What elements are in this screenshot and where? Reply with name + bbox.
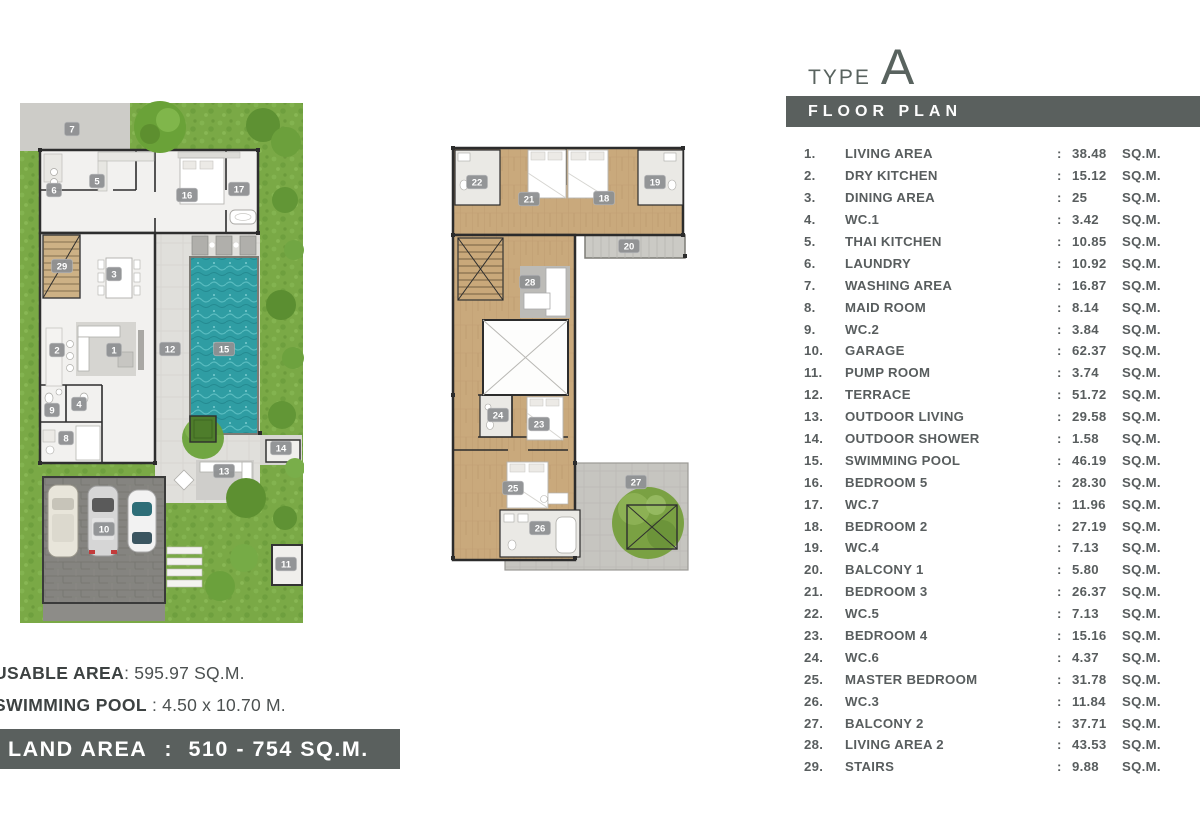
room-colon: : <box>1057 365 1072 380</box>
room-area: 28.30 <box>1072 475 1122 490</box>
room-number-badge-label: 17 <box>234 184 245 195</box>
room-name: WC.7 <box>845 497 1057 512</box>
room-number-badge-label: 28 <box>525 277 536 288</box>
room-number-badge-label: 26 <box>535 523 546 534</box>
room-row: 28.LIVING AREA 2:43.53SQ.M. <box>786 734 1200 756</box>
room-number: 21. <box>804 584 845 599</box>
room-row: 20.BALCONY 1:5.80SQ.M. <box>786 559 1200 581</box>
stairs-2f <box>458 238 503 300</box>
room-area: 62.37 <box>1072 343 1122 358</box>
room-number: 19. <box>804 540 845 555</box>
room-area: 15.16 <box>1072 628 1122 643</box>
room-number: 23. <box>804 628 845 643</box>
room-number: 8. <box>804 300 845 315</box>
room-number-badge-label: 15 <box>219 344 230 355</box>
room-number: 10. <box>804 343 845 358</box>
room-colon: : <box>1057 475 1072 490</box>
room-number-badge-label: 24 <box>493 410 504 421</box>
room-number: 16. <box>804 475 845 490</box>
room-number-badge-label: 4 <box>76 399 82 410</box>
room-name: WC.3 <box>845 694 1057 709</box>
room-colon: : <box>1057 584 1072 599</box>
swimming-pool-value: : 4.50 x 10.70 M. <box>147 695 286 715</box>
room-area: 1.58 <box>1072 431 1122 446</box>
garage-cars <box>48 485 156 557</box>
room-colon: : <box>1057 409 1072 424</box>
room-number: 5. <box>804 234 845 249</box>
room-row: 8.MAID ROOM:8.14SQ.M. <box>786 296 1200 318</box>
room-number-badge-label: 14 <box>276 443 287 454</box>
room-area: 26.37 <box>1072 584 1122 599</box>
room-number-badge-label: 6 <box>51 185 56 196</box>
room-colon: : <box>1057 387 1072 402</box>
ground-floor-plan: 765161729321121594813141011 <box>18 100 304 625</box>
room-number: 22. <box>804 606 845 621</box>
room-row: 29.STAIRS:9.88SQ.M. <box>786 756 1200 778</box>
usable-area-line: USABLE AREA: 595.97 SQ.M. <box>0 663 245 684</box>
room-unit: SQ.M. <box>1122 343 1200 358</box>
second-floor-plan: 2221181920282423252627 <box>448 143 710 575</box>
room-number: 1. <box>804 146 845 161</box>
room-colon: : <box>1057 322 1072 337</box>
room-name: MASTER BEDROOM <box>845 672 1057 687</box>
room-name: WC.1 <box>845 212 1057 227</box>
plan-type-title: TYPE A <box>786 38 915 96</box>
room-unit: SQ.M. <box>1122 409 1200 424</box>
room-number: 13. <box>804 409 845 424</box>
room-number: 15. <box>804 453 845 468</box>
room-area: 7.13 <box>1072 540 1122 555</box>
room-colon: : <box>1057 497 1072 512</box>
room-colon: : <box>1057 672 1072 687</box>
room-unit: SQ.M. <box>1122 431 1200 446</box>
room-unit: SQ.M. <box>1122 256 1200 271</box>
land-area-value: 510 - 754 SQ.M. <box>188 737 368 762</box>
room-area: 9.88 <box>1072 759 1122 774</box>
room-number: 29. <box>804 759 845 774</box>
room-number: 27. <box>804 716 845 731</box>
room-unit: SQ.M. <box>1122 716 1200 731</box>
room-name: LAUNDRY <box>845 256 1057 271</box>
room-name: BEDROOM 2 <box>845 519 1057 534</box>
room-colon: : <box>1057 278 1072 293</box>
room-area: 46.19 <box>1072 453 1122 468</box>
usable-area-label: USABLE AREA <box>0 663 124 683</box>
room-name: OUTDOOR LIVING <box>845 409 1057 424</box>
room-name: TERRACE <box>845 387 1057 402</box>
land-area-bar: LAND AREA : 510 - 754 SQ.M. <box>0 729 400 769</box>
room-colon: : <box>1057 431 1072 446</box>
room-name: BEDROOM 5 <box>845 475 1057 490</box>
room-row: 22.WC.5:7.13SQ.M. <box>786 603 1200 625</box>
room-name: WC.6 <box>845 650 1057 665</box>
room-number-badge-label: 27 <box>631 477 642 488</box>
room-colon: : <box>1057 606 1072 621</box>
room-number-badge-label: 25 <box>508 483 519 494</box>
room-row: 1.LIVING AREA:38.48SQ.M. <box>786 143 1200 165</box>
swimming-pool-line: SWIMMING POOL : 4.50 x 10.70 M. <box>0 695 286 716</box>
room-area: 3.74 <box>1072 365 1122 380</box>
room-row: 6.LAUNDRY:10.92SQ.M. <box>786 252 1200 274</box>
room-area: 27.19 <box>1072 519 1122 534</box>
room-unit: SQ.M. <box>1122 168 1200 183</box>
room-colon: : <box>1057 628 1072 643</box>
room-row: 16.BEDROOM 5:28.30SQ.M. <box>786 471 1200 493</box>
room-number: 17. <box>804 497 845 512</box>
room-number-badge-label: 13 <box>219 466 230 477</box>
room-row: 2.DRY KITCHEN:15.12SQ.M. <box>786 165 1200 187</box>
car-icon <box>128 490 156 552</box>
room-row: 18.BEDROOM 2:27.19SQ.M. <box>786 515 1200 537</box>
room-number-badge-label: 9 <box>49 405 54 416</box>
room-number-badge-label: 1 <box>111 345 117 356</box>
room-area: 5.80 <box>1072 562 1122 577</box>
void-opening <box>483 320 568 395</box>
room-number-badge-label: 11 <box>281 559 292 570</box>
driveway <box>43 603 165 621</box>
room-name: OUTDOOR SHOWER <box>845 431 1057 446</box>
room-number-badge-label: 12 <box>165 344 176 355</box>
room-unit: SQ.M. <box>1122 475 1200 490</box>
room-colon: : <box>1057 519 1072 534</box>
room-number: 24. <box>804 650 845 665</box>
room-row: 5.THAI KITCHEN:10.85SQ.M. <box>786 231 1200 253</box>
room-name: MAID ROOM <box>845 300 1057 315</box>
room-colon: : <box>1057 562 1072 577</box>
room-unit: SQ.M. <box>1122 562 1200 577</box>
room-name: BALCONY 2 <box>845 716 1057 731</box>
room-number-badge-label: 19 <box>650 177 661 188</box>
room-area: 7.13 <box>1072 606 1122 621</box>
room-row: 10.GARAGE:62.37SQ.M. <box>786 340 1200 362</box>
type-letter: A <box>881 38 915 96</box>
room-colon: : <box>1057 190 1072 205</box>
room-unit: SQ.M. <box>1122 650 1200 665</box>
room-area: 3.84 <box>1072 322 1122 337</box>
room-area: 15.12 <box>1072 168 1122 183</box>
type-label: TYPE <box>808 66 871 90</box>
room-colon: : <box>1057 234 1072 249</box>
room-name: BEDROOM 3 <box>845 584 1057 599</box>
room-row: 3.DINING AREA:25SQ.M. <box>786 187 1200 209</box>
room-number-badge-label: 5 <box>94 176 100 187</box>
room-name: STAIRS <box>845 759 1057 774</box>
room-unit: SQ.M. <box>1122 737 1200 752</box>
room-number: 2. <box>804 168 845 183</box>
room-number-badge-label: 21 <box>524 194 535 205</box>
room-row: 13.OUTDOOR LIVING:29.58SQ.M. <box>786 406 1200 428</box>
room-row: 19.WC.4:7.13SQ.M. <box>786 537 1200 559</box>
room-area: 11.96 <box>1072 497 1122 512</box>
room-number-badge-label: 3 <box>111 269 116 280</box>
land-area-colon: : <box>164 737 171 762</box>
room-number: 28. <box>804 737 845 752</box>
room-name: WASHING AREA <box>845 278 1057 293</box>
room-colon: : <box>1057 256 1072 271</box>
room-name: WC.5 <box>845 606 1057 621</box>
room-name: BEDROOM 4 <box>845 628 1057 643</box>
room-colon: : <box>1057 540 1072 555</box>
room-row: 12.TERRACE:51.72SQ.M. <box>786 384 1200 406</box>
room-row: 4.WC.1:3.42SQ.M. <box>786 209 1200 231</box>
room-number-badge-label: 7 <box>69 124 74 135</box>
room-number-badge-label: 18 <box>599 193 610 204</box>
room-area: 11.84 <box>1072 694 1122 709</box>
room-name: PUMP ROOM <box>845 365 1057 380</box>
room-unit: SQ.M. <box>1122 453 1200 468</box>
room-name: SWIMMING POOL <box>845 453 1057 468</box>
room-unit: SQ.M. <box>1122 190 1200 205</box>
room-row: 14.OUTDOOR SHOWER:1.58SQ.M. <box>786 428 1200 450</box>
room-number-badge-label: 23 <box>534 419 545 430</box>
room-area: 25 <box>1072 190 1122 205</box>
room-number: 26. <box>804 694 845 709</box>
room-area: 16.87 <box>1072 278 1122 293</box>
room-row: 11.PUMP ROOM:3.74SQ.M. <box>786 362 1200 384</box>
room-row: 17.WC.7:11.96SQ.M. <box>786 493 1200 515</box>
room-area: 31.78 <box>1072 672 1122 687</box>
room-area: 38.48 <box>1072 146 1122 161</box>
room-area: 10.92 <box>1072 256 1122 271</box>
room-area: 37.71 <box>1072 716 1122 731</box>
room-row: 7.WASHING AREA:16.87SQ.M. <box>786 274 1200 296</box>
room-row: 24.WC.6:4.37SQ.M. <box>786 646 1200 668</box>
room-number: 18. <box>804 519 845 534</box>
room-colon: : <box>1057 212 1072 227</box>
room-unit: SQ.M. <box>1122 628 1200 643</box>
room-unit: SQ.M. <box>1122 584 1200 599</box>
room-area: 43.53 <box>1072 737 1122 752</box>
room-colon: : <box>1057 694 1072 709</box>
room-unit: SQ.M. <box>1122 694 1200 709</box>
room-unit: SQ.M. <box>1122 387 1200 402</box>
car-icon <box>88 486 118 556</box>
room-number-badge-label: 8 <box>63 433 68 444</box>
room-number-badge-label: 2 <box>54 345 59 356</box>
pool-lounge-chairs <box>192 236 256 255</box>
room-row: 9.WC.2:3.84SQ.M. <box>786 318 1200 340</box>
room-area: 8.14 <box>1072 300 1122 315</box>
room-row: 23.BEDROOM 4:15.16SQ.M. <box>786 625 1200 647</box>
room-unit: SQ.M. <box>1122 519 1200 534</box>
tree-icon <box>134 101 186 153</box>
room-colon: : <box>1057 716 1072 731</box>
room-number-badge-label: 29 <box>57 261 68 272</box>
room-number: 4. <box>804 212 845 227</box>
room-unit: SQ.M. <box>1122 540 1200 555</box>
room-number: 20. <box>804 562 845 577</box>
room-colon: : <box>1057 146 1072 161</box>
room-colon: : <box>1057 343 1072 358</box>
room-unit: SQ.M. <box>1122 278 1200 293</box>
room-colon: : <box>1057 759 1072 774</box>
room-unit: SQ.M. <box>1122 234 1200 249</box>
room-unit: SQ.M. <box>1122 300 1200 315</box>
info-panel: TYPE A FLOOR PLAN 1.LIVING AREA:38.48SQ.… <box>786 38 1200 798</box>
room-number: 25. <box>804 672 845 687</box>
room-name: BALCONY 1 <box>845 562 1057 577</box>
room-name: DRY KITCHEN <box>845 168 1057 183</box>
land-area-label: LAND AREA <box>8 737 147 762</box>
room-colon: : <box>1057 300 1072 315</box>
room-number: 9. <box>804 322 845 337</box>
room-unit: SQ.M. <box>1122 672 1200 687</box>
room-unit: SQ.M. <box>1122 497 1200 512</box>
room-number: 7. <box>804 278 845 293</box>
room-number-badge-label: 10 <box>99 524 110 535</box>
swimming-pool-label: SWIMMING POOL <box>0 695 147 715</box>
room-number: 11. <box>804 365 845 380</box>
room-row: 27.BALCONY 2:37.71SQ.M. <box>786 712 1200 734</box>
room-row: 25.MASTER BEDROOM:31.78SQ.M. <box>786 668 1200 690</box>
room-number: 12. <box>804 387 845 402</box>
room-row: 21.BEDROOM 3:26.37SQ.M. <box>786 581 1200 603</box>
room-name: WC.2 <box>845 322 1057 337</box>
car-icon <box>48 485 78 557</box>
room-colon: : <box>1057 453 1072 468</box>
balcony-tree <box>612 487 684 559</box>
room-name: THAI KITCHEN <box>845 234 1057 249</box>
room-area-list: 1.LIVING AREA:38.48SQ.M.2.DRY KITCHEN:15… <box>786 143 1200 778</box>
section-title-bar: FLOOR PLAN <box>786 96 1200 127</box>
room-colon: : <box>1057 168 1072 183</box>
room-number: 14. <box>804 431 845 446</box>
usable-area-value: : 595.97 SQ.M. <box>124 663 245 683</box>
room-row: 15.SWIMMING POOL:46.19SQ.M. <box>786 449 1200 471</box>
room-unit: SQ.M. <box>1122 365 1200 380</box>
room-name: LIVING AREA 2 <box>845 737 1057 752</box>
room-area: 4.37 <box>1072 650 1122 665</box>
room-area: 29.58 <box>1072 409 1122 424</box>
room-number-badge-label: 16 <box>182 190 193 201</box>
room-area: 10.85 <box>1072 234 1122 249</box>
room-name: GARAGE <box>845 343 1057 358</box>
room-row: 26.WC.3:11.84SQ.M. <box>786 690 1200 712</box>
room-number: 6. <box>804 256 845 271</box>
floor-plan-page: 765161729321121594813141011 <box>0 0 1200 840</box>
room-colon: : <box>1057 650 1072 665</box>
room-name: DINING AREA <box>845 190 1057 205</box>
room-unit: SQ.M. <box>1122 146 1200 161</box>
room-unit: SQ.M. <box>1122 606 1200 621</box>
room-name: WC.4 <box>845 540 1057 555</box>
room-unit: SQ.M. <box>1122 322 1200 337</box>
room-unit: SQ.M. <box>1122 212 1200 227</box>
room-colon: : <box>1057 737 1072 752</box>
room-name: LIVING AREA <box>845 146 1057 161</box>
room-area: 3.42 <box>1072 212 1122 227</box>
room-number-badge-label: 22 <box>472 177 483 188</box>
room-area: 51.72 <box>1072 387 1122 402</box>
room-number-badge-label: 20 <box>624 241 635 252</box>
room-unit: SQ.M. <box>1122 759 1200 774</box>
room-number: 3. <box>804 190 845 205</box>
